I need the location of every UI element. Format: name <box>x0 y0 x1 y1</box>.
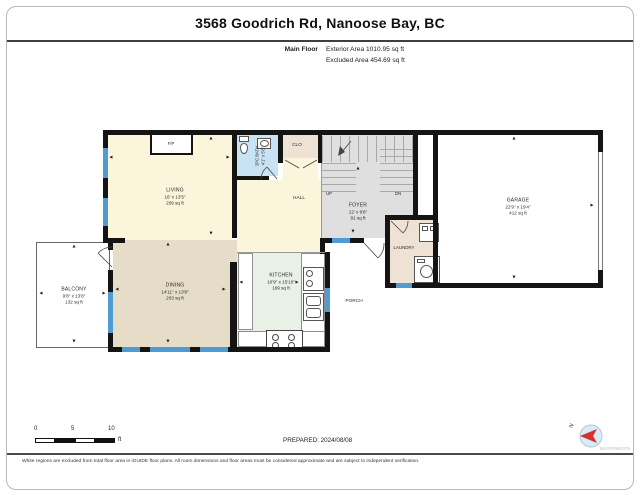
floorplan-page: 3568 Goodrich Rd, Nanoose Bay, BC Main F… <box>0 0 640 495</box>
disclaimer-text: White regions are excluded from total fl… <box>22 459 419 464</box>
compass <box>0 0 640 495</box>
footer-divider <box>7 453 633 455</box>
mls-number: MLS®#964376 <box>600 446 630 451</box>
